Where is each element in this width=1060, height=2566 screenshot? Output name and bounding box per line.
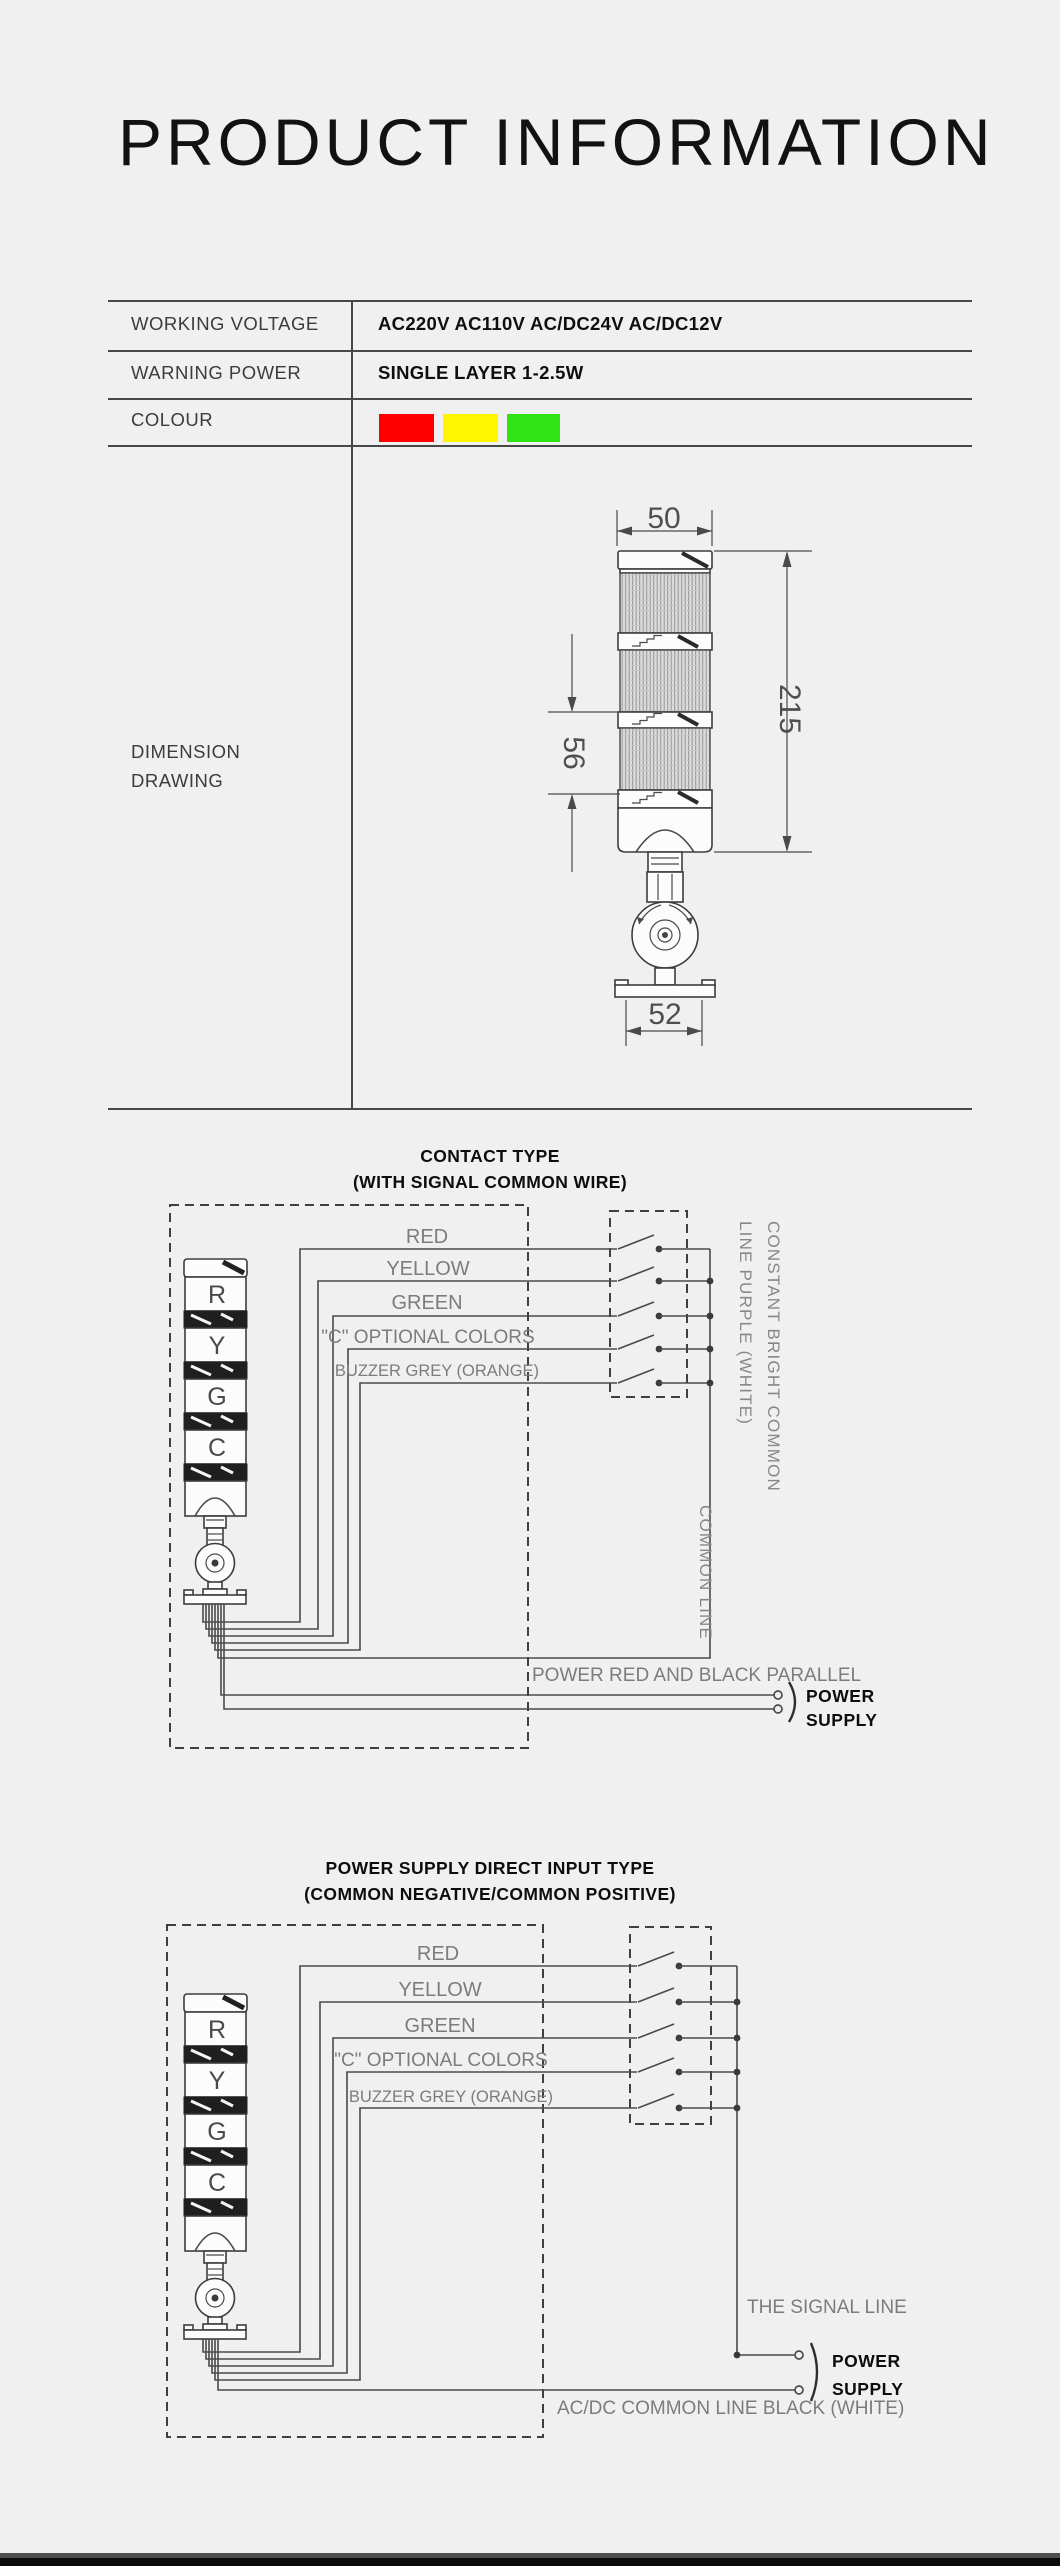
- wire-label-green: GREEN: [404, 2015, 475, 2037]
- table-rule-3: [108, 398, 972, 400]
- power-supply-bracket: [789, 1682, 795, 1722]
- common-line: [218, 1249, 713, 1658]
- note-power-red-black-parallel: POWER RED AND BLACK PARALLEL: [532, 1665, 861, 1686]
- colour-swatches: [0, 414, 1060, 442]
- note-the-signal-line: THE SIGNAL LINE: [747, 2297, 907, 2318]
- dim-height-total: 215: [714, 551, 812, 852]
- power-supply-bracket: [811, 2343, 817, 2401]
- row-working-voltage-value: AC220V AC110V AC/DC24V AC/DC12V: [378, 313, 723, 335]
- table-rule-top: [108, 300, 972, 302]
- product-information-page: PRODUCT INFORMATION WORKING VOLTAGE AC22…: [0, 0, 1060, 2566]
- dim-lens-height-value: 56: [557, 736, 590, 769]
- row-warning-power-value: SINGLE LAYER 1-2.5W: [378, 362, 583, 384]
- wire-label-buzzer: BUZZER GREY (ORANGE): [349, 2088, 553, 2106]
- switch-contacts: [638, 1952, 737, 2111]
- table-rule-2: [108, 350, 972, 352]
- dim-lens-height: 56: [548, 634, 620, 872]
- dim-base-width: 52: [626, 998, 702, 1046]
- dim-height-total-value: 215: [773, 684, 806, 734]
- table-rule-4: [108, 445, 972, 447]
- wire-label-yellow: YELLOW: [386, 1258, 469, 1280]
- wiring-diagram-direct-input: RED YELLOW GREEN "C" OPTIONAL COLORS BUZ…: [120, 1915, 930, 2460]
- swatch-yellow: [443, 414, 498, 442]
- power-supply-label-line2: SUPPLY: [806, 1710, 877, 1730]
- annotation-constant-bright-common: CONSTANT BRIGHT COMMON: [764, 1221, 783, 1492]
- wire-label-optional: "C" OPTIONAL COLORS: [334, 2050, 547, 2071]
- page-title: PRODUCT INFORMATION: [118, 104, 978, 180]
- wire-label-red: RED: [417, 1943, 459, 1965]
- dim-width-top: 50: [617, 502, 712, 546]
- wire-label-optional: "C" OPTIONAL COLORS: [321, 1327, 534, 1348]
- dimension-label-line2: DRAWING: [131, 766, 240, 795]
- bottom-bar: [0, 2558, 1060, 2566]
- table-rule-bottom: [108, 1108, 972, 1110]
- wire-label-green: GREEN: [391, 1292, 462, 1314]
- dim-base-width-value: 52: [648, 998, 681, 1031]
- wire-buzzer: [215, 2108, 637, 2380]
- diagram2-title-line2: (COMMON NEGATIVE/COMMON POSITIVE): [120, 1881, 860, 1907]
- power-supply-label-line2: SUPPLY: [832, 2379, 903, 2399]
- power-supply-label-line1: POWER: [832, 2351, 901, 2371]
- signal-tower: [184, 1259, 247, 1604]
- row-dimension-label: DIMENSION DRAWING: [131, 737, 240, 795]
- wire-optional: [212, 2072, 637, 2373]
- signal-tower: [184, 1994, 247, 2339]
- diagram1-title: CONTACT TYPE (WITH SIGNAL COMMON WIRE): [120, 1143, 860, 1195]
- switch-contacts: [618, 1235, 710, 1386]
- wire-label-yellow: YELLOW: [398, 1979, 481, 2001]
- acdc-common-line: [218, 2339, 817, 2401]
- note-acdc-common-line: AC/DC COMMON LINE BLACK (WHITE): [557, 2398, 904, 2419]
- row-working-voltage-label: WORKING VOLTAGE: [131, 313, 319, 335]
- wire-buzzer: [215, 1383, 617, 1650]
- dimension-drawing: 50: [520, 490, 840, 1060]
- diagram2-title-line1: POWER SUPPLY DIRECT INPUT TYPE: [120, 1855, 860, 1881]
- diagram1-title-line1: CONTACT TYPE: [120, 1143, 860, 1169]
- wiring-diagram-contact-type: RED YELLOW GREEN "C" OPTIONAL COLORS BUZ…: [120, 1195, 910, 1770]
- wire-label-red: RED: [406, 1226, 448, 1248]
- annotation-common-line: COMMON LINE: [696, 1505, 715, 1640]
- power-supply-label-line1: POWER: [806, 1686, 875, 1706]
- annotation-line-purple-white: LINE PURPLE (WHITE): [736, 1221, 755, 1425]
- swatch-red: [379, 414, 434, 442]
- dim-width-top-value: 50: [647, 502, 680, 535]
- diagram1-title-line2: (WITH SIGNAL COMMON WIRE): [120, 1169, 860, 1195]
- dimension-label-line1: DIMENSION: [131, 737, 240, 766]
- wire-label-buzzer: BUZZER GREY (ORANGE): [335, 1362, 539, 1380]
- row-warning-power-label: WARNING POWER: [131, 362, 301, 384]
- diagram2-title: POWER SUPPLY DIRECT INPUT TYPE (COMMON N…: [120, 1855, 860, 1907]
- dimension-tower: [615, 551, 715, 997]
- swatch-green: [507, 414, 560, 442]
- wire-optional: [212, 1349, 617, 1643]
